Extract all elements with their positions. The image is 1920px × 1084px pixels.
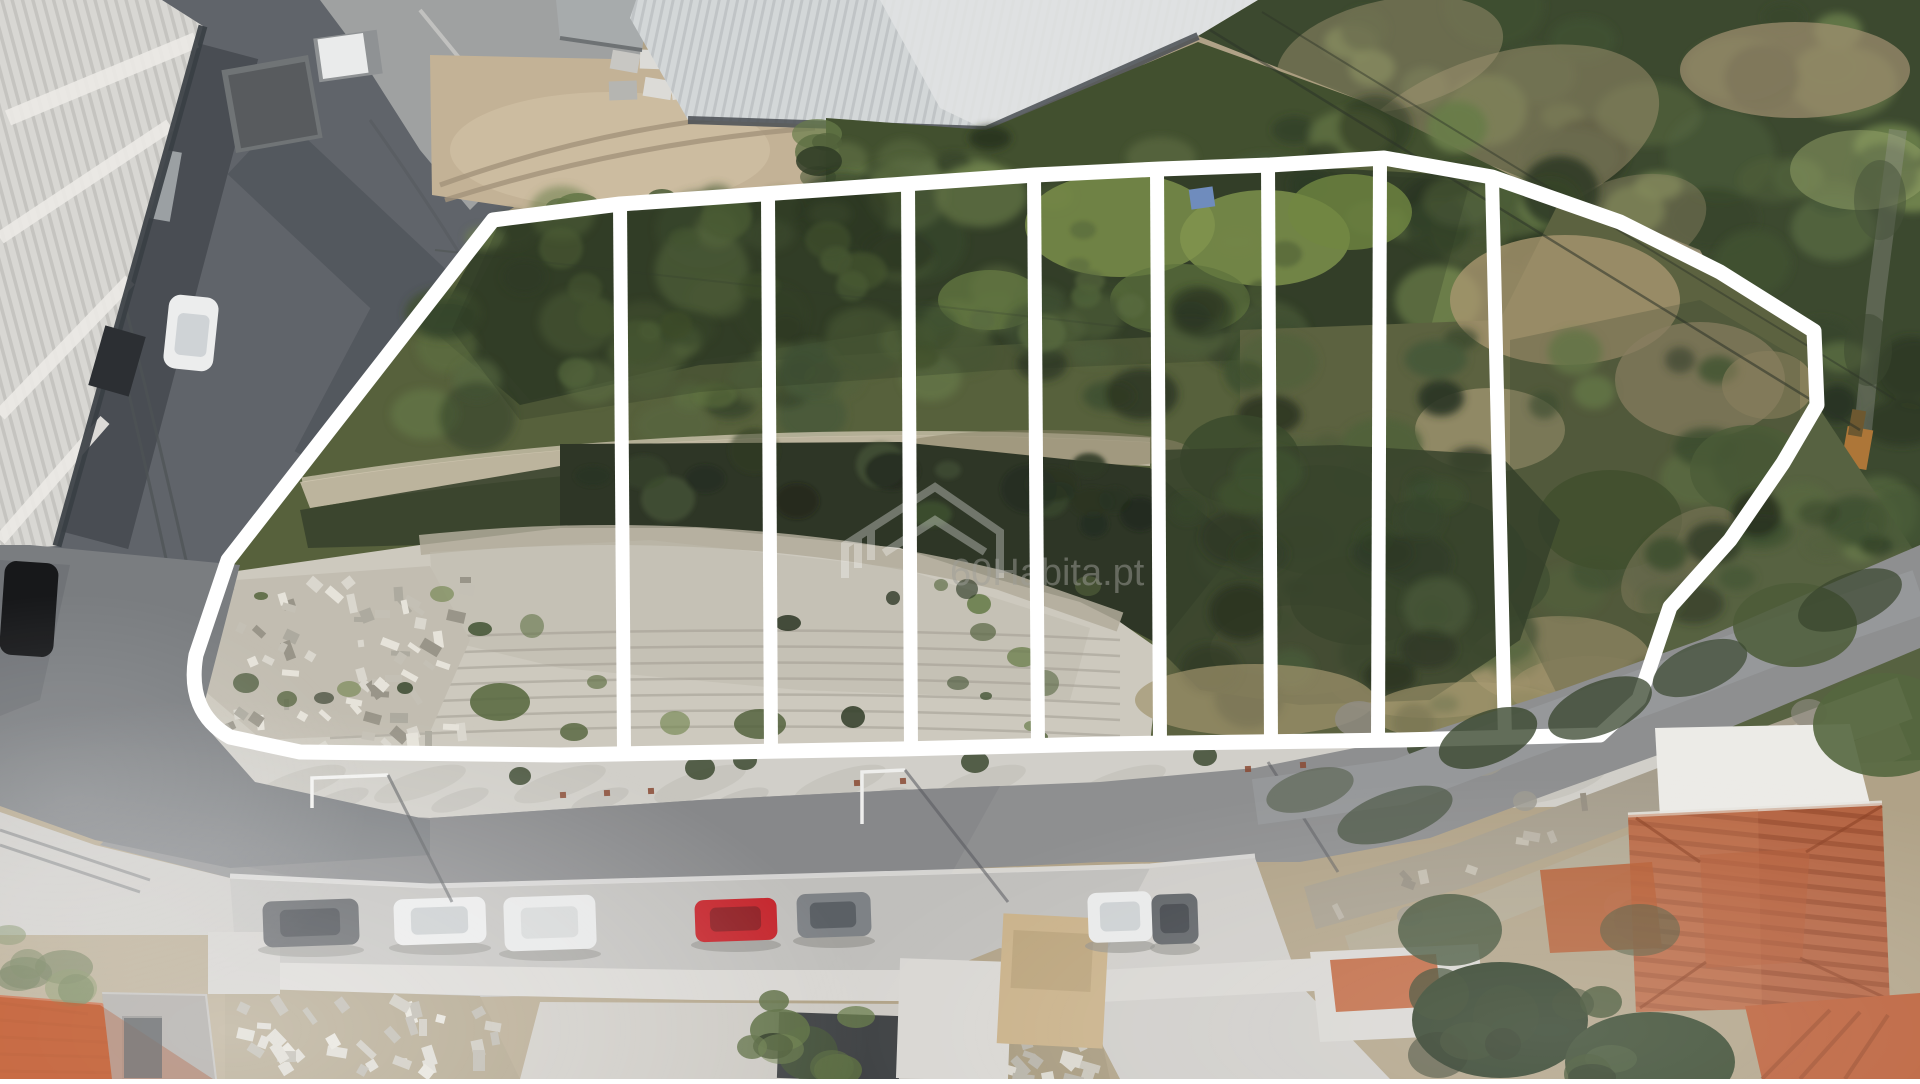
svg-text:60Habita.pt: 60Habita.pt [950,552,1145,594]
